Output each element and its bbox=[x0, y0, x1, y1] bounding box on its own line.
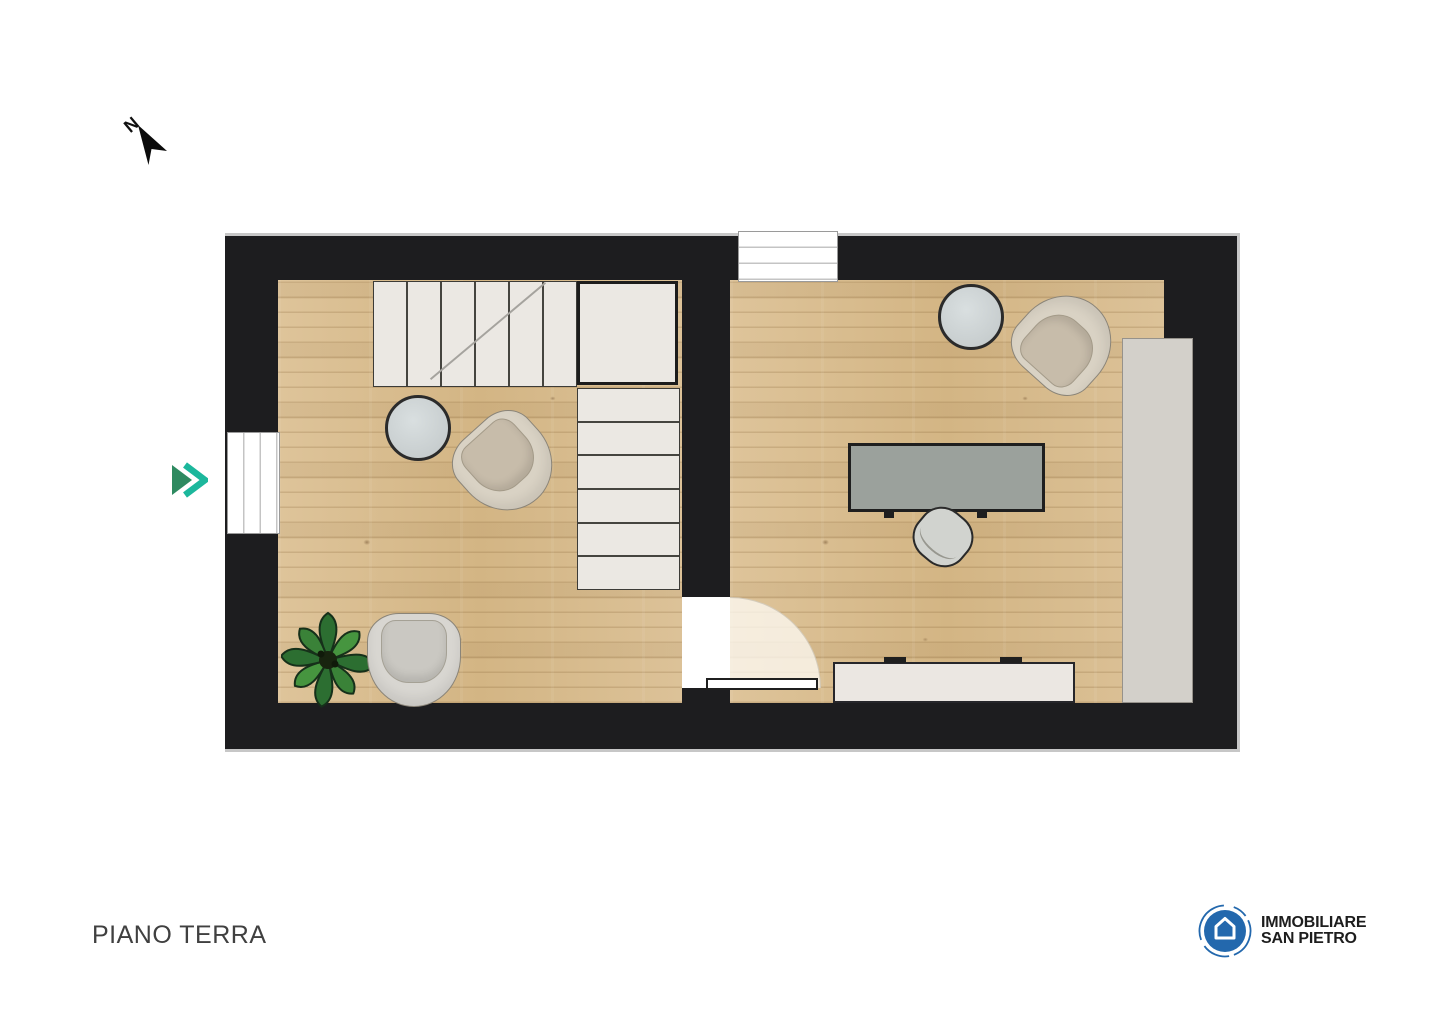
window-top bbox=[738, 231, 838, 282]
window-left bbox=[227, 432, 280, 534]
armchair-cushion bbox=[381, 620, 447, 683]
compass-north-label: N bbox=[120, 113, 143, 137]
agency-logo: IMMOBILIARE SAN PIETRO bbox=[1197, 903, 1366, 959]
stair-tread bbox=[408, 282, 440, 386]
side-table-right bbox=[938, 284, 1004, 350]
door-leaf bbox=[706, 678, 818, 690]
wall-edge-bottom bbox=[225, 749, 1240, 752]
wardrobe-cabinet bbox=[1122, 338, 1193, 703]
stairs-lower-run bbox=[577, 388, 680, 590]
sideboard-handle bbox=[1000, 657, 1022, 663]
logo-line-1: IMMOBILIARE bbox=[1261, 915, 1366, 931]
stair-tread bbox=[578, 389, 679, 421]
page-title: PIANO TERRA bbox=[92, 921, 267, 950]
wall-edge-right bbox=[1237, 233, 1240, 752]
sideboard bbox=[833, 662, 1075, 703]
stair-tread bbox=[442, 282, 474, 386]
floor-plan-page: N bbox=[0, 0, 1440, 1018]
stairs-upper-run bbox=[373, 281, 577, 387]
sideboard-handle bbox=[884, 657, 906, 663]
entrance-arrows-icon bbox=[170, 462, 208, 498]
stair-tread bbox=[578, 524, 679, 556]
door-opening bbox=[682, 597, 730, 688]
plant-icon bbox=[281, 602, 375, 708]
desk-leg bbox=[977, 512, 987, 518]
wall-edge-top bbox=[225, 233, 1240, 236]
stair-tread bbox=[578, 557, 679, 589]
stair-tread bbox=[544, 282, 576, 386]
desk bbox=[848, 443, 1045, 512]
north-arrow-icon: N bbox=[116, 108, 178, 170]
logo-house-icon bbox=[1197, 903, 1253, 959]
side-table-left bbox=[385, 395, 451, 461]
armchair-bottom-left bbox=[367, 613, 461, 707]
stair-tread bbox=[578, 456, 679, 488]
logo-wordmark: IMMOBILIARE SAN PIETRO bbox=[1261, 915, 1366, 947]
stairs-landing bbox=[577, 281, 678, 385]
stair-tread bbox=[578, 423, 679, 455]
desk-leg bbox=[884, 512, 894, 518]
floor-plan bbox=[225, 233, 1240, 752]
stair-tread bbox=[578, 490, 679, 522]
logo-line-2: SAN PIETRO bbox=[1261, 931, 1366, 947]
north-arrowhead bbox=[138, 125, 167, 165]
stair-tread bbox=[374, 282, 406, 386]
